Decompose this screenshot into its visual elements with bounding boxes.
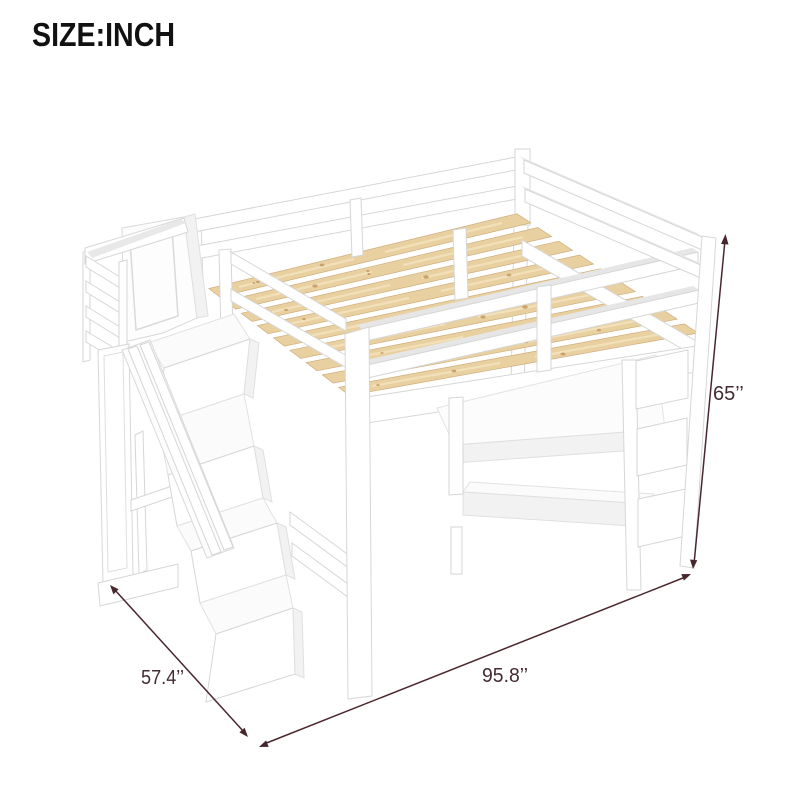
svg-text:SIZE:INCH: SIZE:INCH [32, 16, 175, 53]
svg-text:57.4’’: 57.4’’ [141, 667, 184, 689]
svg-text:95.8’’: 95.8’’ [482, 665, 528, 687]
svg-text:65’’: 65’’ [713, 383, 744, 405]
